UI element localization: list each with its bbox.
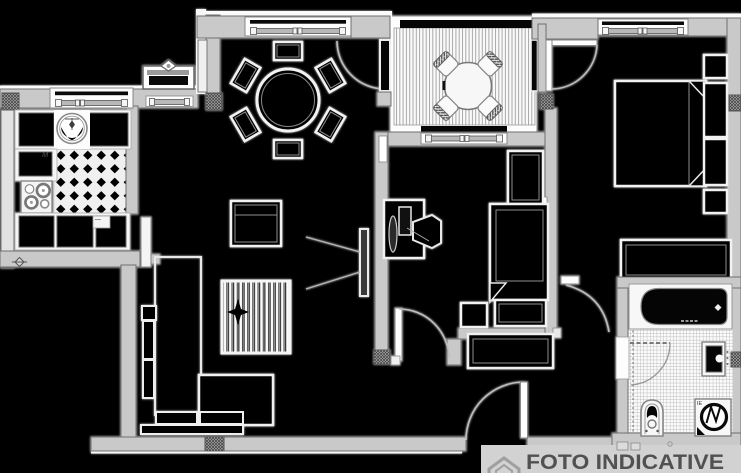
svg-text:IE: IE [697, 401, 703, 407]
svg-text:M: M [42, 150, 49, 159]
svg-text:˘˘˘: ˘˘˘ [94, 219, 101, 226]
svg-text:FOTO INDICATIVE: FOTO INDICATIVE [526, 450, 724, 473]
